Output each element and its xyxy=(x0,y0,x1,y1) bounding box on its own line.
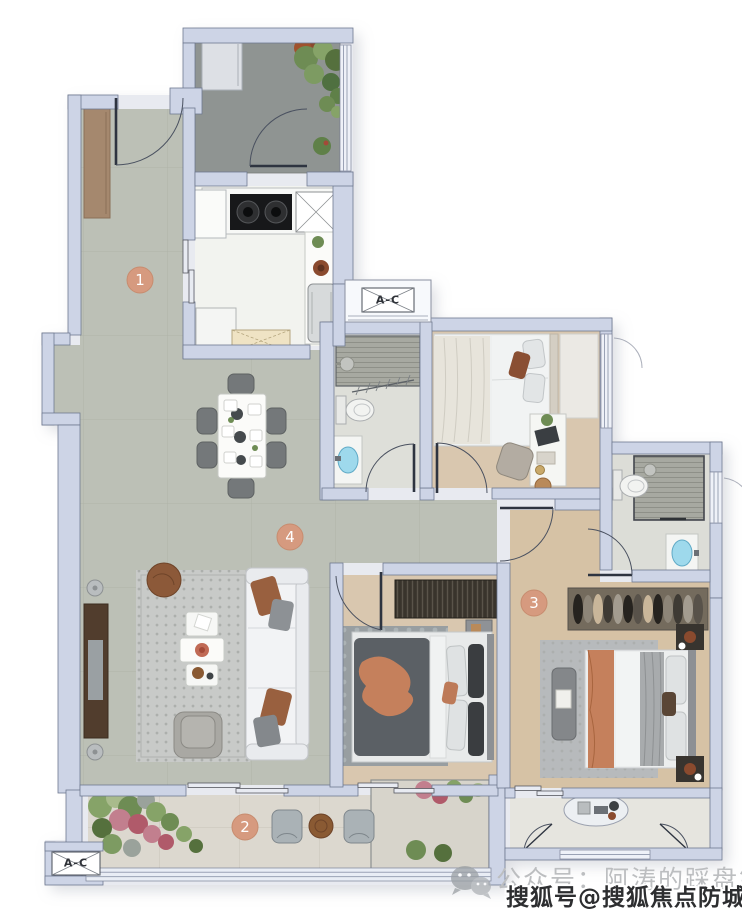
marker-1-label: 1 xyxy=(135,271,145,289)
sofa-cushion xyxy=(253,714,282,748)
bed1-pillow xyxy=(523,373,546,403)
shower-head xyxy=(644,464,656,476)
dining-chair xyxy=(197,408,217,434)
toilet-tank xyxy=(336,396,346,424)
shower-head xyxy=(340,357,354,371)
master-cushion xyxy=(662,692,676,716)
master-headboard xyxy=(688,648,696,770)
casement-arc xyxy=(614,338,642,368)
window xyxy=(601,334,612,428)
window xyxy=(340,45,351,171)
ac-label: A-C xyxy=(376,294,400,307)
bed2-headboard xyxy=(487,634,494,760)
window xyxy=(560,850,650,859)
marker-4-label: 4 xyxy=(285,528,295,546)
desk-plant xyxy=(541,414,553,426)
casement-arc xyxy=(724,478,742,510)
floor-plan-page: A-C A-C 1 2 3 4 xyxy=(0,0,742,912)
window xyxy=(710,472,722,523)
bed2-pillow-dark xyxy=(468,702,484,756)
bed2-pillow-dark xyxy=(468,644,484,698)
dining-chair xyxy=(197,442,217,468)
kitchen-plant xyxy=(312,236,324,248)
sofa xyxy=(246,568,309,760)
marker-2: 2 xyxy=(232,814,258,840)
floor-lamp xyxy=(536,466,545,475)
floor-plan-svg: A-C A-C 1 2 3 4 xyxy=(0,0,742,912)
balcony-chair xyxy=(272,810,302,843)
master-pillow xyxy=(666,712,686,760)
ac-platform-bottom: A-C xyxy=(52,852,100,875)
marker-3: 3 xyxy=(521,590,547,616)
ac-platform-top: A-C xyxy=(345,280,431,322)
balcony-table xyxy=(309,814,333,838)
dining-chair xyxy=(228,478,254,498)
dining-chair xyxy=(228,374,254,394)
marker-3-label: 3 xyxy=(529,594,539,612)
balcony-railing xyxy=(86,868,491,881)
sohu-watermark: 搜狐号@搜狐焦点防城港站 xyxy=(506,884,742,911)
pouf xyxy=(147,563,181,597)
dining-chair xyxy=(266,442,286,468)
ac-label: A-C xyxy=(64,857,88,870)
marker-4: 4 xyxy=(277,524,303,550)
marker-1: 1 xyxy=(127,267,153,293)
fridge xyxy=(196,308,236,350)
bed2-pillow xyxy=(446,699,467,750)
wash-basin xyxy=(672,540,692,566)
bed1-side-dresser xyxy=(560,334,598,418)
marker-2-label: 2 xyxy=(240,818,250,836)
shoe-cabinet xyxy=(202,40,242,90)
bed1-blanket xyxy=(434,336,490,444)
balcony-chair xyxy=(344,810,374,843)
dining-chair xyxy=(266,408,286,434)
